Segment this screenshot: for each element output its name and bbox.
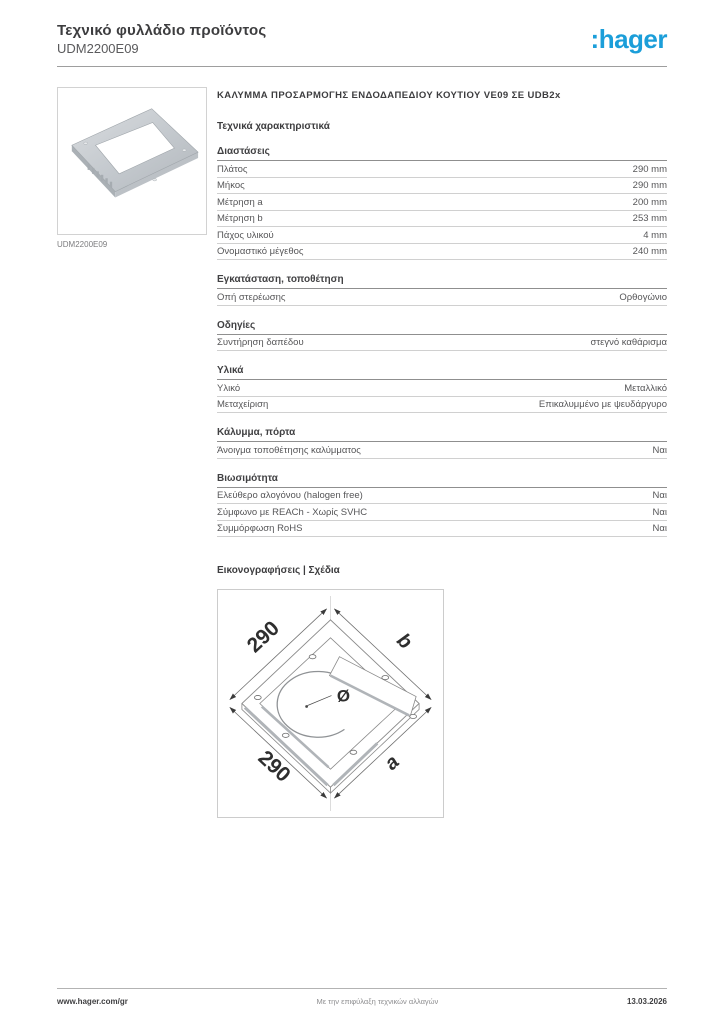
spec-row: ΜεταχείρισηΕπικαλυμμένο με ψευδάργυρο [217, 397, 667, 414]
doc-header: Τεχνικό φυλλάδιο προϊόντος UDM2200E09 :h… [57, 20, 667, 67]
doc-reference: UDM2200E09 [57, 41, 667, 56]
spec-row: Μέτρηση b253 mm [217, 211, 667, 228]
specs-column: ΚΑΛΥΜΜΑ ΠΡΟΣΑΡΜΟΓΗΣ ΕΝΔΟΔΑΠΕΔΙΟΥ ΚΟΥΤΙΟΥ… [217, 87, 667, 818]
hager-logo: :hager [591, 24, 667, 55]
spec-row: Οπή στερέωσηςΟρθογώνιο [217, 289, 667, 306]
spec-row: Μέτρηση a200 mm [217, 194, 667, 211]
spec-row: Ονομαστικό μέγεθος240 mm [217, 244, 667, 261]
spec-section-heading: Βιωσιμότητα [217, 473, 667, 488]
product-heading: ΚΑΛΥΜΜΑ ΠΡΟΣΑΡΜΟΓΗΣ ΕΝΔΟΔΑΠΕΔΙΟΥ ΚΟΥΤΙΟΥ… [217, 90, 667, 101]
spec-row-label: Μέτρηση a [217, 197, 263, 208]
page-footer: www.hager.com/gr Με την επιφύλαξη τεχνικ… [57, 988, 667, 1006]
spec-row-label: Πάχος υλικού [217, 230, 274, 241]
spec-row-value: Ναι [643, 490, 667, 501]
spec-row-label: Μεταχείριση [217, 399, 268, 410]
technical-drawing-svg: Ø 290 b 290 a [218, 590, 443, 817]
datasheet-page: Τεχνικό φυλλάδιο προϊόντος UDM2200E09 :h… [0, 0, 724, 1024]
spec-sections: ΔιαστάσειςΠλάτος290 mmΜήκος290 mmΜέτρηση… [217, 146, 667, 537]
spec-row-label: Σύμφωνο με REACh - Χωρίς SVHC [217, 507, 367, 518]
spec-row-value: στεγνό καθάρισμα [580, 337, 667, 348]
spec-row-label: Μέτρηση b [217, 213, 263, 224]
spec-row-label: Οπή στερέωσης [217, 292, 286, 303]
spec-row: Πάχος υλικού4 mm [217, 227, 667, 244]
drawing-dim-bottom-left: 290 [254, 746, 295, 787]
spec-row-value: 253 mm [623, 213, 667, 224]
spec-section-heading: Οδηγίες [217, 320, 667, 335]
product-photo-image [58, 88, 206, 234]
drawing-dim-top-left: 290 [243, 617, 284, 658]
spec-section-heading: Υλικά [217, 365, 667, 380]
drawing-dim-top-right: b [392, 629, 416, 653]
spec-section-heading: Κάλυμμα, πόρτα [217, 427, 667, 442]
spec-row-value: 290 mm [623, 164, 667, 175]
spec-row-value: Ναι [643, 507, 667, 518]
spec-row-label: Ονομαστικό μέγεθος [217, 246, 304, 257]
spec-row-value: Ναι [643, 523, 667, 534]
spec-row-value: Μεταλλικό [614, 383, 667, 394]
drawing-dim-bottom-right: a [381, 751, 404, 775]
main-content: UDM2200E09 ΚΑΛΥΜΜΑ ΠΡΟΣΑΡΜΟΓΗΣ ΕΝΔΟΔΑΠΕΔ… [57, 87, 667, 818]
spec-row-value: 4 mm [633, 230, 667, 241]
spec-row-label: Συντήρηση δαπέδου [217, 337, 304, 348]
spec-section-heading: Διαστάσεις [217, 146, 667, 161]
spec-row-label: Πλάτος [217, 164, 247, 175]
header-divider [57, 66, 667, 67]
specs-title: Τεχνικά χαρακτηριστικά [217, 121, 667, 132]
spec-row-value: 240 mm [623, 246, 667, 257]
spec-row: Πλάτος290 mm [217, 161, 667, 178]
spec-section: Κάλυμμα, πόρταΆνοιγμα τοποθέτησης καλύμμ… [217, 427, 667, 459]
spec-row-label: Άνοιγμα τοποθέτησης καλύμματος [217, 445, 361, 456]
footer-website: www.hager.com/gr [57, 997, 128, 1006]
spec-row: Συμμόρφωση RoHSΝαι [217, 521, 667, 538]
product-photo-caption: UDM2200E09 [57, 240, 207, 249]
spec-row-value: 200 mm [623, 197, 667, 208]
spec-section-heading: Εγκατάσταση, τοποθέτηση [217, 274, 667, 289]
product-photo [57, 87, 207, 235]
spec-row-value: Ορθογώνιο [609, 292, 667, 303]
spec-section: Εγκατάσταση, τοποθέτησηΟπή στερέωσηςΟρθο… [217, 274, 667, 306]
spec-row-label: Ελεύθερο αλογόνου (halogen free) [217, 490, 363, 501]
spec-row: Ελεύθερο αλογόνου (halogen free)Ναι [217, 488, 667, 505]
spec-row-value: 290 mm [623, 180, 667, 191]
spec-row-value: Επικαλυμμένο με ψευδάργυρο [529, 399, 667, 410]
technical-drawing: Ø 290 b 290 a [217, 589, 444, 818]
spec-row: Συντήρηση δαπέδουστεγνό καθάρισμα [217, 335, 667, 352]
spec-section: ΥλικάΥλικόΜεταλλικόΜεταχείρισηΕπικαλυμμέ… [217, 365, 667, 413]
drawing-diameter-symbol: Ø [337, 687, 350, 706]
doc-title: Τεχνικό φυλλάδιο προϊόντος [57, 22, 667, 39]
spec-row: Σύμφωνο με REACh - Χωρίς SVHCΝαι [217, 504, 667, 521]
product-photo-column: UDM2200E09 [57, 87, 207, 818]
spec-row: Μήκος290 mm [217, 178, 667, 195]
spec-row-label: Συμμόρφωση RoHS [217, 523, 302, 534]
spec-section: ΔιαστάσειςΠλάτος290 mmΜήκος290 mmΜέτρηση… [217, 146, 667, 260]
spec-row: Άνοιγμα τοποθέτησης καλύμματοςΝαι [217, 442, 667, 459]
spec-section: ΟδηγίεςΣυντήρηση δαπέδουστεγνό καθάρισμα [217, 320, 667, 352]
spec-row-label: Υλικό [217, 383, 240, 394]
spec-section: ΒιωσιμότηταΕλεύθερο αλογόνου (halogen fr… [217, 473, 667, 538]
footer-date: 13.03.2026 [627, 997, 667, 1006]
spec-row-value: Ναι [643, 445, 667, 456]
illustrations-title: Εικονογραφήσεις | Σχέδια [217, 565, 667, 576]
spec-row: ΥλικόΜεταλλικό [217, 380, 667, 397]
spec-row-label: Μήκος [217, 180, 245, 191]
footer-disclaimer: Με την επιφύλαξη τεχνικών αλλαγών [316, 997, 438, 1006]
